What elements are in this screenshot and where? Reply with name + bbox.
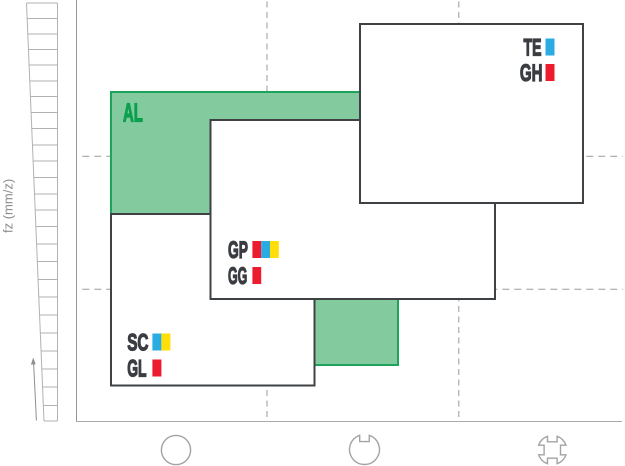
svg-text:GH: GH [520,60,543,87]
svg-text:fz (mm/z): fz (mm/z) [1,179,16,233]
svg-text:TE: TE [524,35,542,62]
svg-text:AL: AL [123,98,143,128]
svg-text:GL: GL [127,356,146,383]
svg-text:SC: SC [127,330,148,357]
svg-text:GG: GG [228,263,247,290]
svg-text:GP: GP [228,237,248,264]
